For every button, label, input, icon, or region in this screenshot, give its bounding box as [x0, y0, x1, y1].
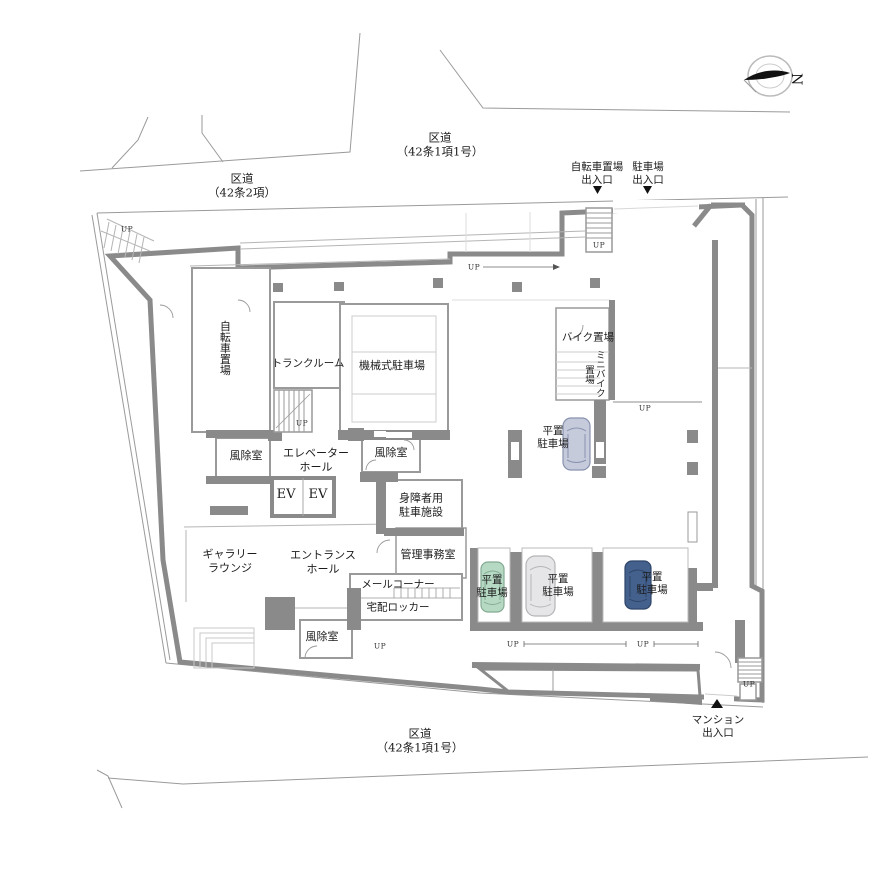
parking-entrance-arrow — [643, 186, 652, 194]
stair-top-center — [586, 208, 612, 252]
elevator-block — [272, 478, 334, 516]
car-navy — [625, 561, 651, 609]
site-floor-plan: N 区道 （42条1項1号） 区道 （42条2項） 区道 （42条1項1号） 自… — [0, 0, 872, 872]
compass-icon: N — [744, 56, 804, 96]
compass-north-label: N — [788, 73, 804, 85]
plan-drawing: N — [0, 0, 872, 872]
car-white — [526, 556, 555, 616]
car-green — [481, 562, 504, 612]
stair-bottom-right — [738, 658, 762, 682]
driveway-wedge — [472, 665, 700, 696]
bicycle-entrance-arrow — [593, 186, 602, 194]
car-upper — [563, 418, 590, 470]
stair-core — [274, 390, 312, 432]
